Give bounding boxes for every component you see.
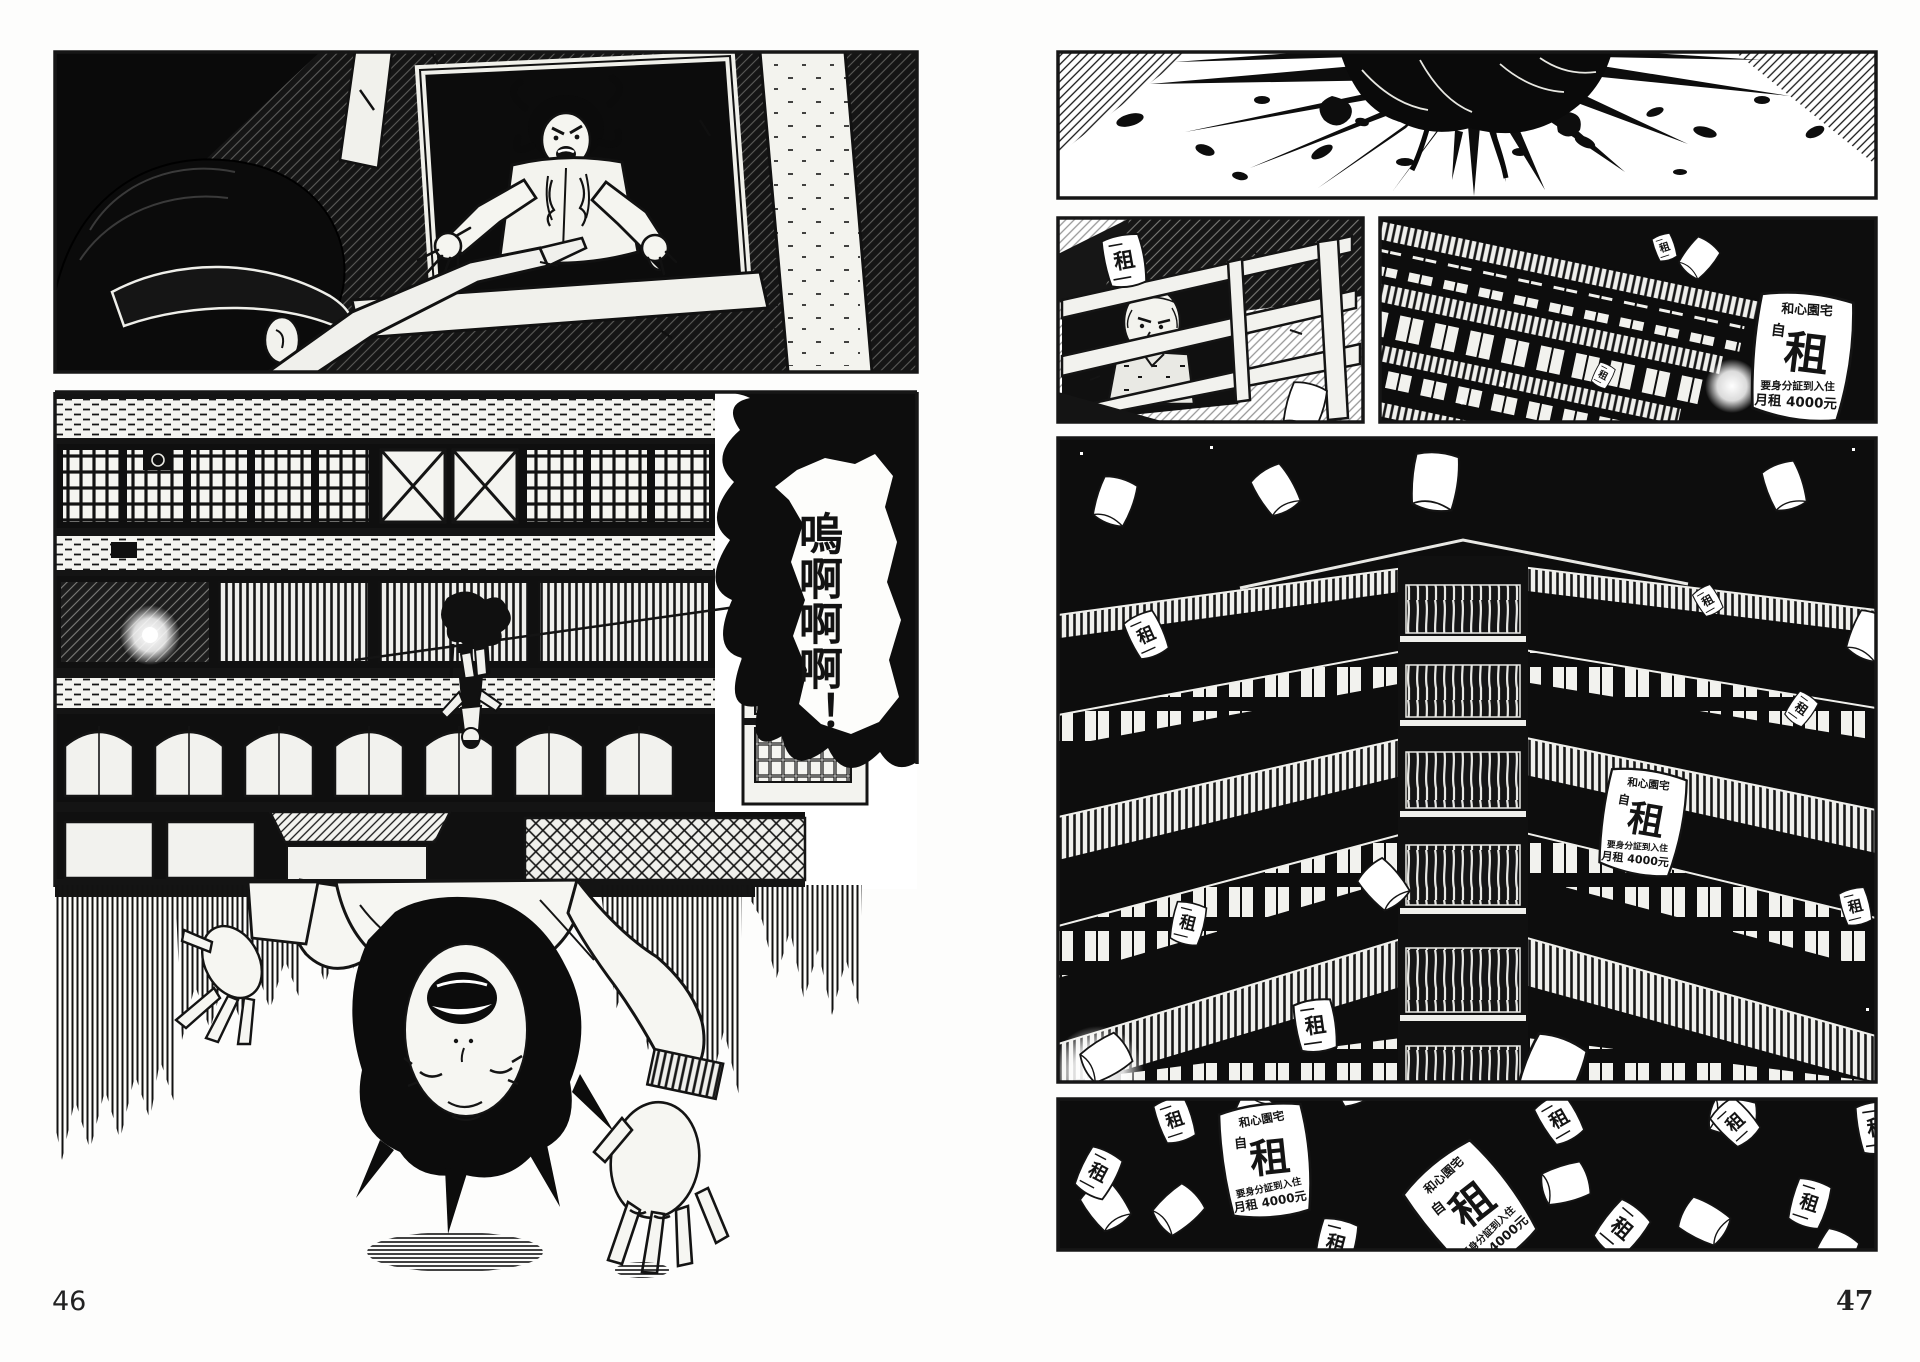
scream-bubble-text: 嗚啊啊啊！: [783, 498, 839, 748]
panel-man-at-window: [1058, 218, 1363, 435]
ground-shadow-small: [615, 1262, 669, 1278]
falling-woman-right-hand: [594, 1096, 728, 1273]
page-47: [1052, 46, 1901, 1285]
panel-building-worms-eye: [1052, 438, 1895, 1118]
ground-shadow: [367, 1232, 543, 1272]
panel-impact-splatter: [1058, 46, 1876, 198]
manga-spread: 和心園宅 自 租 要身分証到入住 月租 4000元 租: [0, 0, 1920, 1362]
page-number-left: 46: [52, 1286, 86, 1317]
panel-window-grab: [50, 50, 917, 372]
page-number-right: 47: [1836, 1286, 1874, 1317]
